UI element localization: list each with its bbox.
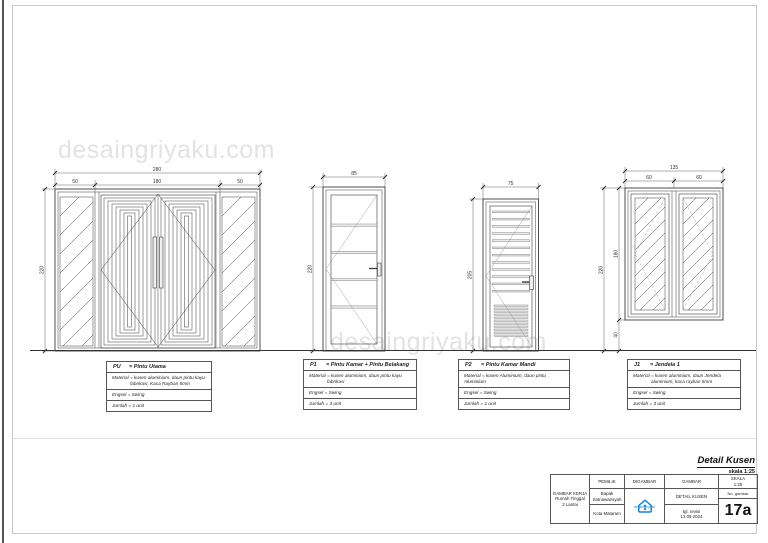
p2-drawing: 75 205	[465, 178, 560, 358]
spec-header: PU = Pintu Utama	[107, 362, 211, 373]
watermark-top: desaingriyaku.com	[58, 136, 275, 165]
spec-box-p1: P1 = Pintu Kamar + Pintu Belakang Materi…	[303, 359, 417, 410]
spec-header: P1 = Pintu Kamar + Pintu Belakang	[304, 360, 416, 371]
svg-text:50: 50	[237, 179, 243, 185]
svg-text:40: 40	[614, 332, 620, 338]
pu-door	[55, 189, 260, 351]
skala-header: SKALA 1:25	[719, 475, 757, 488]
p2-louvers-lower	[494, 308, 528, 309]
svg-text:85: 85	[351, 171, 357, 177]
p2-louvers-lower	[494, 320, 528, 321]
spec-code: P2	[465, 362, 481, 368]
spec-box-j1: J1 = Jendela 1 Material = kusen aluminiu…	[627, 359, 741, 410]
spec-name: = Pintu Kamar + Pintu Belakang	[326, 362, 409, 368]
spec-code: P1	[310, 362, 326, 368]
j1-window	[625, 188, 723, 320]
p1-drawing: 85 220	[305, 168, 400, 358]
p2-louvers-upper	[493, 211, 530, 213]
p1-handle	[378, 263, 382, 276]
tb-col-digambar: DIGAMBAR desaingriyaku	[624, 475, 664, 523]
spec-engsel: Engsel = Swing	[107, 390, 211, 401]
spec-material: Material = kusen aluminium, daun Jendela…	[628, 371, 740, 388]
p2-louvers-lower	[494, 329, 528, 330]
gambar-header: GAMBAR	[665, 475, 718, 488]
spec-header: J1 = Jendela 1	[628, 360, 740, 371]
j1-glass-left	[635, 198, 665, 310]
j1-drawing: 135 60 60 220 180 40	[595, 160, 740, 355]
p2-louvers-lower	[494, 305, 528, 306]
ground-line	[30, 350, 756, 351]
sheet-title: Detail Kusen skala 1:25	[697, 450, 755, 475]
svg-text:205: 205	[468, 271, 474, 280]
tb-col-project: GAMBAR KERJA Rumah Tinggal 2 Lantai	[551, 475, 589, 523]
svg-text:60: 60	[696, 175, 702, 181]
p1-door	[323, 187, 385, 351]
spec-name: = Jendela 1	[650, 362, 680, 368]
j1-sash-right	[679, 194, 717, 314]
pemilik-header: PEMILIK	[590, 475, 624, 488]
spec-code: PU	[113, 364, 129, 370]
p2-louvers-upper	[493, 276, 530, 278]
svg-text:180: 180	[614, 250, 620, 259]
gambar-revisi: tgl. revisi 13 09 2024	[665, 504, 718, 523]
spec-box-p2: P2 = Pintu Kamar Mandi Material = kusen …	[458, 359, 570, 410]
svg-text:75: 75	[508, 181, 514, 187]
spec-name: = Pintu Kamar Mandi	[481, 362, 536, 368]
p2-louvers-lower	[494, 335, 528, 336]
pu-handle-right	[160, 237, 164, 288]
spec-engsel: Engsel = Swing	[304, 388, 416, 399]
digambar-header: DIGAMBAR	[625, 475, 664, 488]
j1-glass-right	[683, 198, 713, 310]
p2-louvers-upper	[493, 283, 530, 285]
tb-col-gambar: GAMBAR DETAIL KUSEN tgl. revisi 13 09 20…	[664, 475, 718, 523]
gambar-name: DETAIL KUSEN	[665, 488, 718, 504]
project-cell: GAMBAR KERJA Rumah Tinggal 2 Lantai	[551, 475, 589, 523]
spec-jumlah: Jumlah = 3 unit	[304, 399, 416, 409]
spec-jumlah: Jumlah = 1 unit	[459, 399, 569, 409]
spec-engsel: Engsel = Swing	[459, 388, 569, 399]
spec-name: = Pintu Utama	[129, 364, 166, 370]
svg-text:180: 180	[153, 179, 162, 185]
p2-louvers-upper	[493, 254, 530, 256]
area-divider-line	[12, 438, 756, 439]
spec-code: J1	[634, 362, 650, 368]
svg-text:220: 220	[308, 265, 314, 274]
drawing-sheet: desaingriyaku.com desaingriyaku.com 280 …	[0, 0, 768, 543]
p2-louvers-upper	[493, 233, 530, 235]
p1-leaf	[331, 195, 377, 344]
spec-header: P2 = Pintu Kamar Mandi	[459, 360, 569, 371]
spec-material: Material = kusen aluminium, daun pintu k…	[304, 371, 416, 388]
tb-col-pemilik: PEMILIK Bapak Satriawansyah Kota Mataram	[589, 475, 624, 523]
tb-col-skala: SKALA 1:25 No. gambar 17a	[718, 475, 757, 523]
svg-text:135: 135	[670, 165, 679, 171]
svg-text:220: 220	[599, 266, 605, 275]
p2-louvers-lower	[494, 317, 528, 318]
sheet-title-text: Detail Kusen	[697, 455, 755, 468]
p2-louvers-lower	[494, 323, 528, 324]
house-logo-icon	[636, 498, 654, 514]
spec-material: Material = kusen Aluminium, daun pintu A…	[459, 371, 569, 388]
pemilik-city: Kota Mataram	[590, 504, 624, 523]
p2-handle	[530, 276, 534, 290]
title-block-table: GAMBAR KERJA Rumah Tinggal 2 Lantai PEMI…	[550, 474, 758, 524]
sheet-number: 17a	[719, 498, 757, 523]
spec-jumlah: Jumlah = 1 unit	[107, 401, 211, 411]
p2-louvers-upper	[493, 290, 530, 292]
svg-text:220: 220	[40, 266, 46, 275]
j1-sash-left	[631, 194, 669, 314]
scan-edge-line	[2, 0, 4, 543]
svg-text:60: 60	[646, 175, 652, 181]
p2-louvers-upper	[493, 269, 530, 271]
p1-dimensions: 85 220	[308, 171, 388, 353]
pemilik-name: Bapak Satriawansyah	[590, 488, 624, 504]
spec-jumlah: Jumlah = 3 unit	[628, 399, 740, 409]
p2-louvers-upper	[493, 247, 530, 249]
svg-text:280: 280	[153, 167, 162, 173]
spec-material: Material = kusen aluminium, daun pintu k…	[107, 373, 211, 390]
no-gambar-label: No. gambar	[719, 488, 757, 498]
p2-louvers-lower	[494, 311, 528, 312]
p2-door	[483, 199, 539, 351]
spec-box-pu: PU = Pintu Utama Material = kusen alumin…	[106, 361, 212, 412]
pu-glass-right	[222, 197, 255, 346]
spec-engsel: Engsel = Swing	[628, 388, 740, 399]
p2-louvers-upper	[493, 240, 530, 242]
j1-dimensions: 135 60 60 220 180 40	[599, 165, 726, 353]
pu-glass-left	[60, 197, 93, 346]
p2-louvers-upper	[493, 225, 530, 227]
p2-louvers-lower	[494, 326, 528, 327]
digambar-logo-cell: desaingriyaku	[625, 488, 664, 523]
pu-drawing: 280 50 180 50 220	[40, 165, 270, 355]
p2-louvers-upper	[493, 261, 530, 263]
svg-text:50: 50	[72, 179, 78, 185]
pu-handle-left	[153, 237, 157, 288]
